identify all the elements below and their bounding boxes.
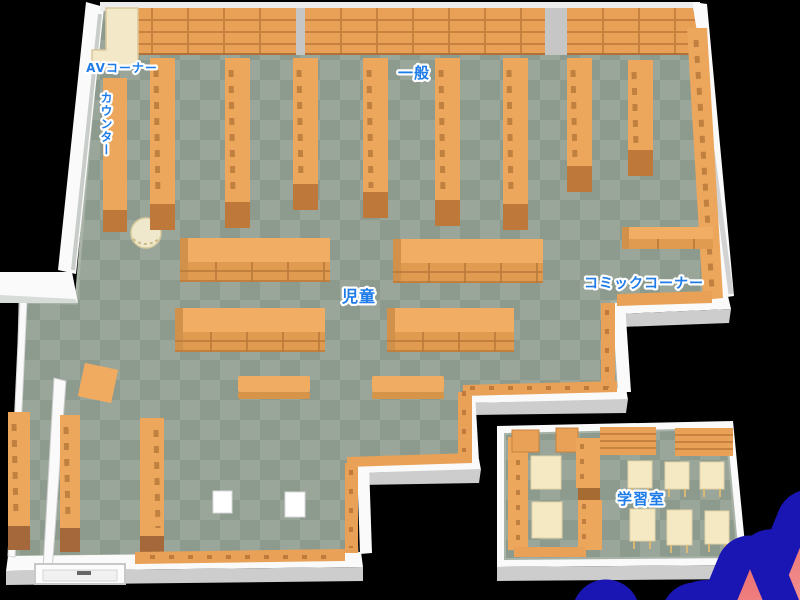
- pillar: [285, 492, 305, 517]
- study-room-label: 学習室: [617, 490, 665, 508]
- study-top-shelf-bank: [600, 427, 656, 455]
- study-room: 学習室: [497, 421, 747, 581]
- children-bank-row1-right: [393, 239, 543, 283]
- study-table: [532, 502, 562, 538]
- comic-shelf-bank: [622, 227, 713, 249]
- diamond-mat: [78, 363, 118, 403]
- top-wall-shelves: [116, 8, 701, 55]
- study-top-shelf-bank: [675, 428, 733, 456]
- children-bank-row1-left: [180, 238, 330, 282]
- study-bottom-shelf: [514, 547, 586, 557]
- study-top-shelf-1: [512, 430, 539, 452]
- door-handle: [77, 571, 91, 575]
- general-label: 一般: [398, 64, 430, 82]
- study-top-shelf-2: [556, 428, 578, 452]
- library-floor-map: AVコーナー カウンター 一般 児童 コミックコーナー: [0, 0, 800, 600]
- study-divider-shelf: [576, 438, 602, 550]
- counter-label: カウンター: [99, 91, 113, 156]
- children-bank-row2-left: [175, 308, 325, 352]
- comic-corner-label: コミックコーナー: [584, 276, 704, 292]
- study-table: [531, 456, 561, 489]
- library-map-page: AVコーナー カウンター 一般 児童 コミックコーナー: [0, 0, 800, 600]
- study-room-wall-face: [497, 565, 747, 581]
- entrance-door: [35, 564, 125, 584]
- children-label: 児童: [341, 287, 376, 306]
- av-corner-label: AVコーナー: [86, 61, 158, 75]
- pillar: [213, 491, 232, 513]
